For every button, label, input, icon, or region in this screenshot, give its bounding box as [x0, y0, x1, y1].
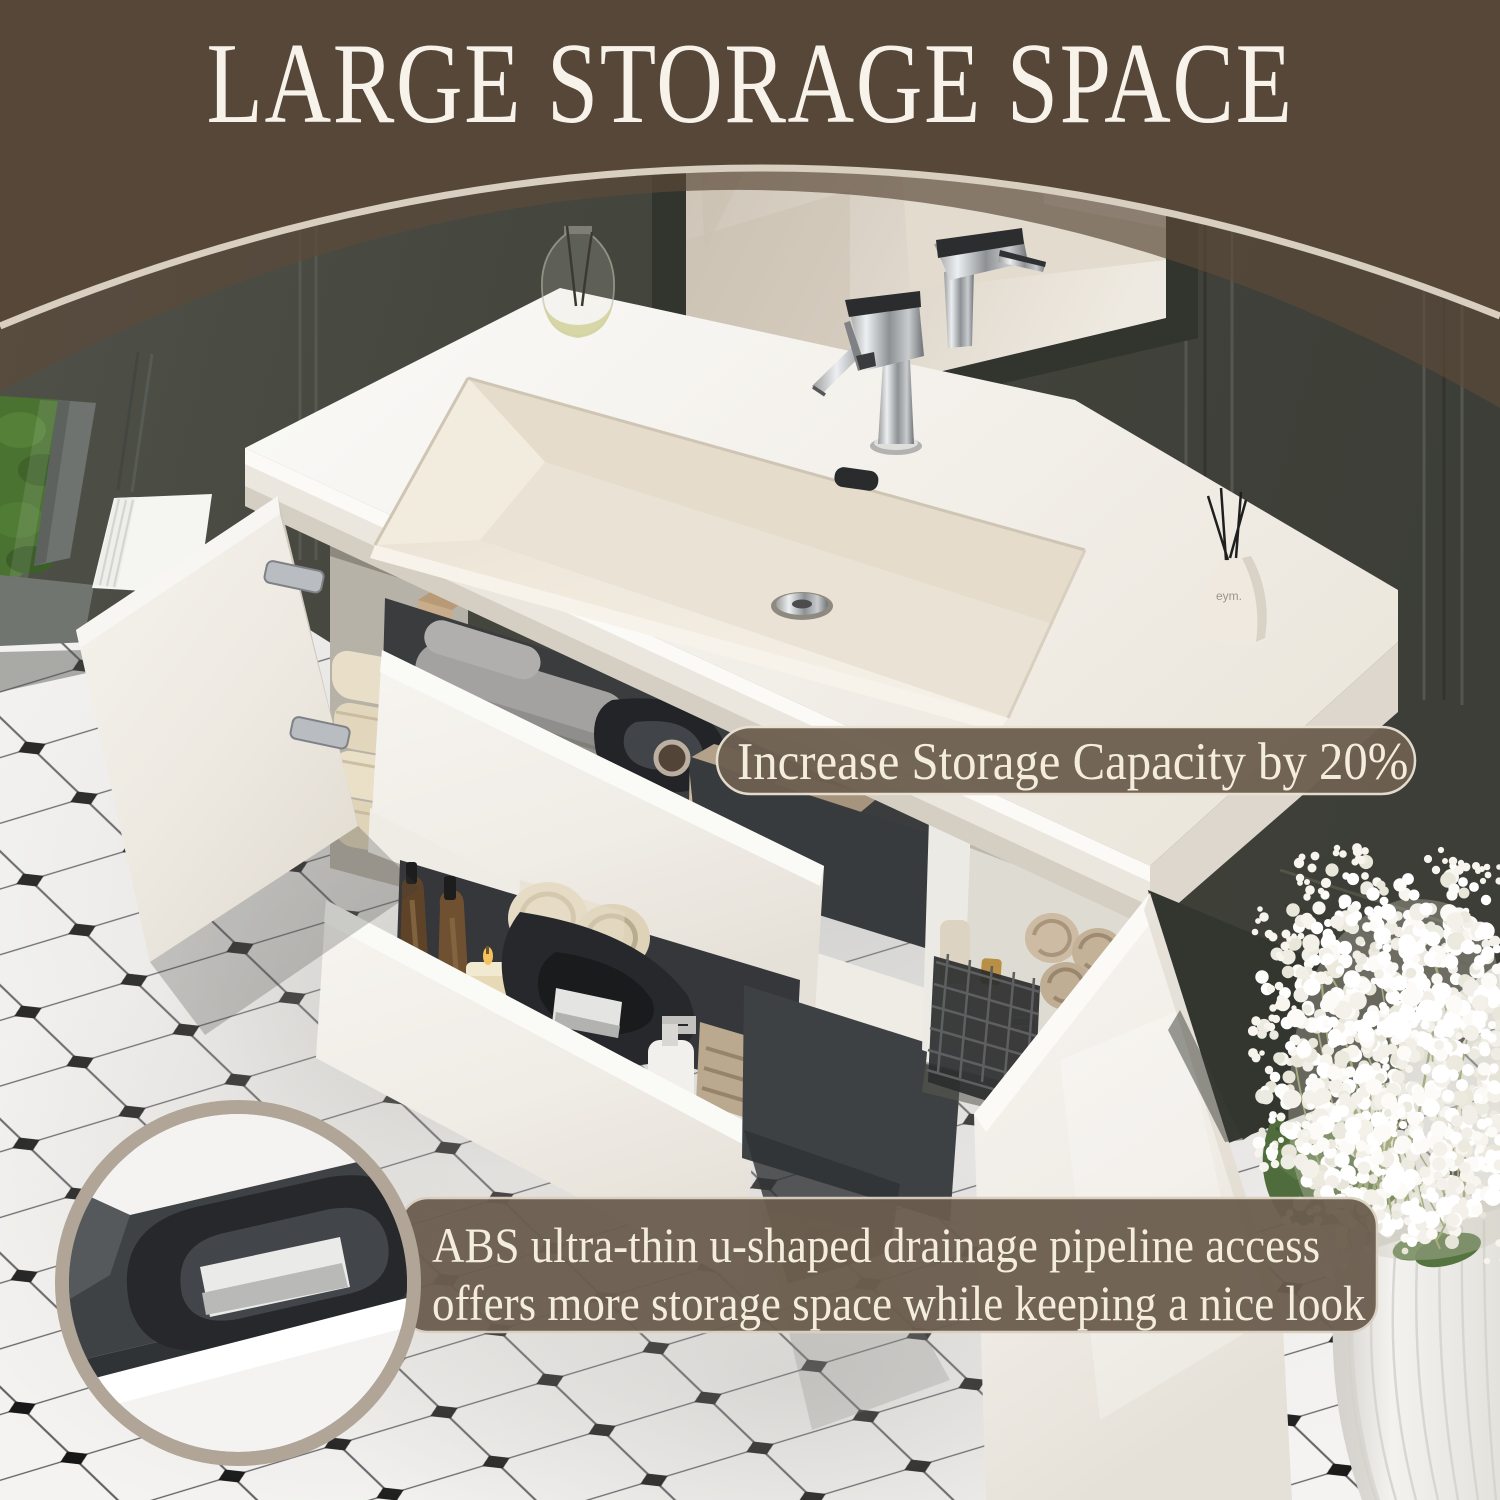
svg-text:Increase Storage Capacity by 2: Increase Storage Capacity by 20%	[737, 733, 1408, 791]
svg-text:offers more storage space whil: offers more storage space while keeping …	[432, 1277, 1366, 1332]
svg-text:LARGE STORAGE SPACE: LARGE STORAGE SPACE	[206, 19, 1293, 147]
svg-text:ABS ultra-thin u-shaped draina: ABS ultra-thin u-shaped drainage pipelin…	[432, 1219, 1320, 1274]
svg-text:eym.: eym.	[1216, 589, 1242, 603]
